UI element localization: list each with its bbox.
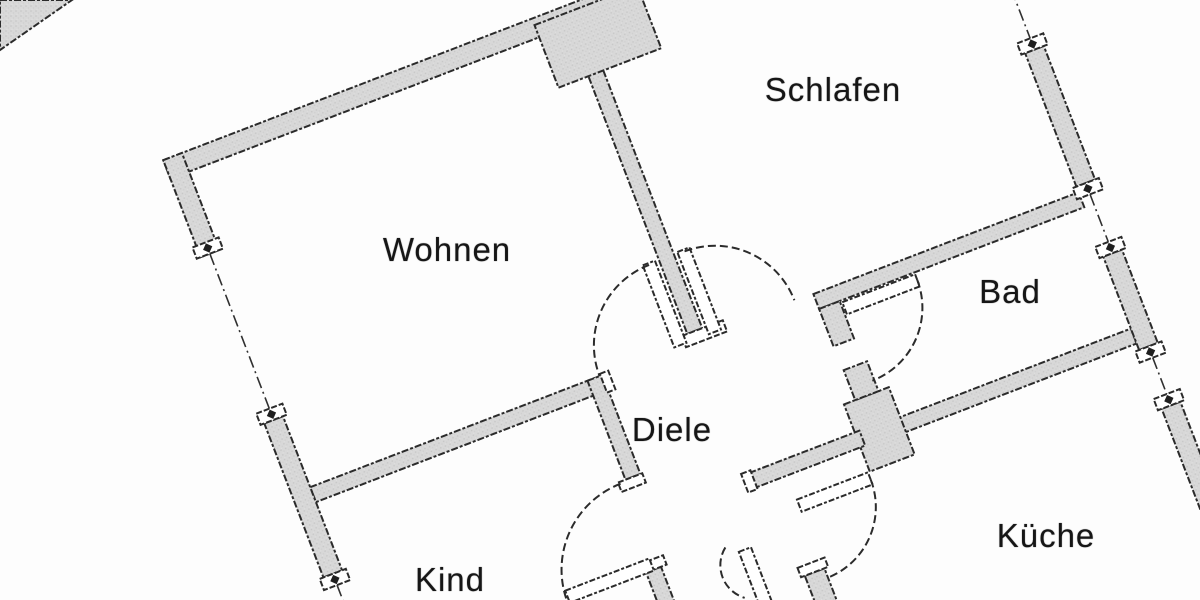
window-kueche-right	[1162, 402, 1200, 598]
chimney-block-center	[844, 387, 915, 471]
room-label-wohnen: Wohnen	[383, 231, 511, 269]
window-axis-line	[210, 254, 269, 409]
room-label-bad: Bad	[979, 273, 1041, 311]
window-schlafen-right	[1025, 46, 1095, 187]
door-leaf-entry	[739, 547, 776, 600]
room-label-diele: Diele	[632, 411, 712, 449]
window-axis-line	[337, 585, 358, 600]
room-label-schlafen: Schlafen	[765, 71, 901, 109]
door-leaf-kueche	[797, 472, 873, 511]
floorplan-page: Wohnen Schlafen Bad Diele Küche Kind	[0, 0, 1200, 600]
adjacent-wall-fragment	[0, 0, 72, 50]
room-label-kind: Kind	[415, 561, 485, 599]
window-axis-line	[1003, 0, 1030, 38]
door-swing-arc-entry	[713, 547, 745, 600]
window-axis-line	[1153, 358, 1167, 394]
window-axis-line	[1090, 194, 1108, 242]
rotated-plan-group	[159, 0, 1200, 600]
room-label-kueche: Küche	[997, 517, 1096, 555]
wall-schlafen-bad	[813, 192, 1084, 309]
door-leaf-kind	[565, 558, 654, 600]
wall-wohnen-kind	[310, 375, 608, 502]
